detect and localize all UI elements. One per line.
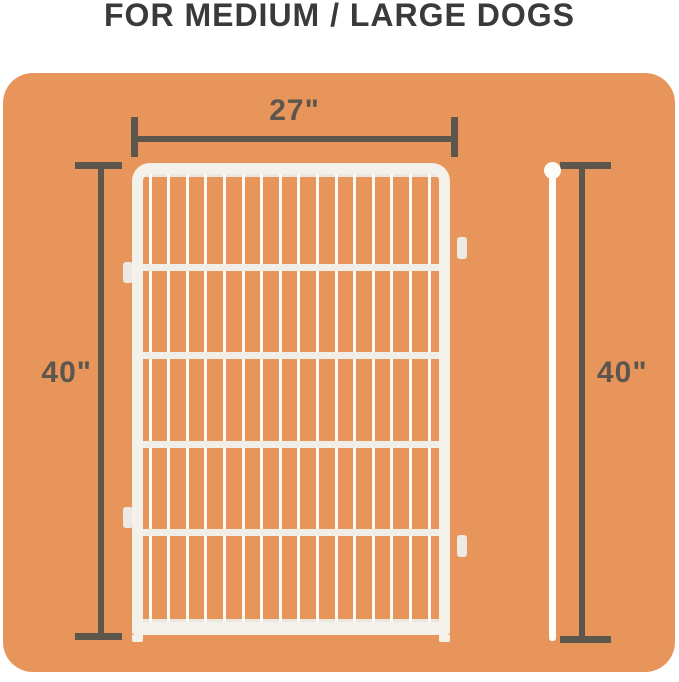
height-dimension-right-line [579,169,585,637]
page-title: FOR MEDIUM / LARGE DOGS [0,0,679,34]
fence-foot-left [132,635,143,642]
height-dimension-right-cap-top [560,162,611,169]
height-dimension-left-line [98,169,104,634]
height-dimension-left-label: 40" [26,356,92,390]
product-diagram: FOR MEDIUM / LARGE DOGS 27" 40" 40" [0,0,679,682]
height-dimension-left-cap-bottom [75,633,122,640]
panel-connector-tab [457,237,467,259]
fence-foot-right [439,635,450,642]
panel-edge-pole [549,176,556,641]
height-dimension-right-cap-bottom [560,636,611,643]
width-dimension-label: 27" [134,94,455,128]
height-dimension-left-cap-top [75,162,122,169]
height-dimension-right-label: 40" [597,356,667,390]
width-dimension-line [134,136,455,142]
fence-frame [132,163,450,635]
width-dimension-cap-left [131,117,138,157]
fence-panel [132,163,450,642]
panel-connector-tab [457,535,467,557]
width-dimension-cap-right [451,117,458,157]
